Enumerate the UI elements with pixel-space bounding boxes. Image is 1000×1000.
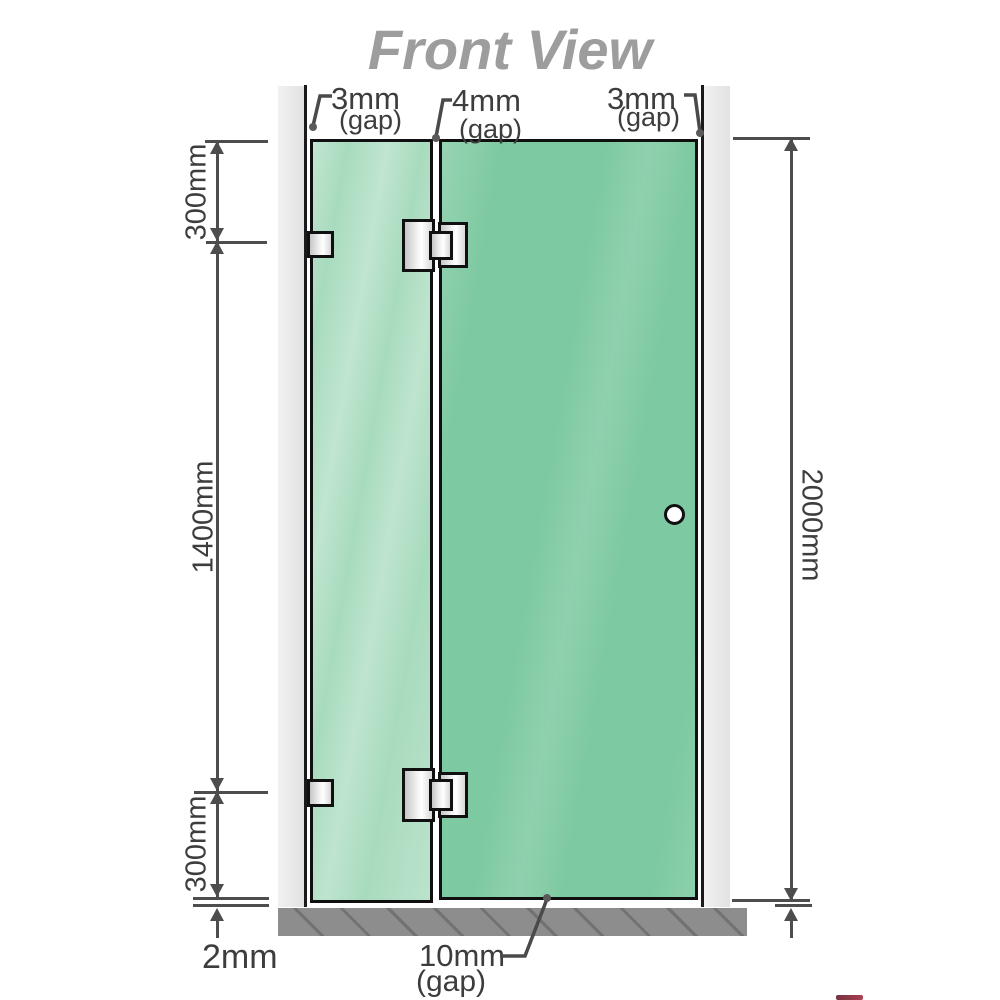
arrow-down-icon <box>210 778 224 791</box>
door-knob-icon <box>664 504 685 525</box>
gap-label-4mm-middle: 4mm <box>452 85 521 116</box>
wall-bracket-bottom <box>307 779 334 807</box>
dimension-line-right <box>790 138 793 901</box>
dim-label-300-bottom: 300mm <box>183 796 212 893</box>
gap-qualifier-left: (gap) <box>339 107 402 134</box>
leader-dot <box>309 123 317 131</box>
hinge-bottom-center-block <box>429 779 453 811</box>
hinge-top-center-block <box>429 231 453 260</box>
floor-gap-stem-right <box>790 920 793 938</box>
arrow-up-icon <box>210 241 224 254</box>
leader-gap-left <box>313 96 332 126</box>
leader-gap-middle <box>436 100 452 137</box>
extension-line-glass-bottom-right <box>732 899 810 902</box>
leader-gap-right <box>684 95 700 132</box>
gap-qualifier-middle: (gap) <box>459 116 522 143</box>
extension-line-300-bottom <box>194 791 268 794</box>
wall-bracket-top <box>307 231 334 258</box>
dim-label-300-top: 300mm <box>183 144 212 241</box>
door-glass-panel <box>439 139 698 900</box>
cropped-logo-fragment <box>836 995 863 1000</box>
dim-label-1400: 1400mm <box>190 461 219 574</box>
dim-label-2mm: 2mm <box>202 940 278 974</box>
right-wall-channel <box>704 86 730 907</box>
front-view-diagram: Front View 300mm 1400mm 300mm 2mm 2000m <box>0 0 1000 1000</box>
extension-line-floor-top-left <box>193 904 269 907</box>
arrow-up-icon <box>784 138 798 151</box>
extension-line-floor-top-right <box>775 904 812 907</box>
dim-label-2000: 2000mm <box>797 469 826 582</box>
gap-qualifier-right: (gap) <box>617 104 680 131</box>
floor-gap-stem-left <box>216 920 219 938</box>
extension-line-glass-bottom-left <box>193 897 269 900</box>
right-wall-line <box>701 85 704 907</box>
arrow-down-icon <box>784 888 798 901</box>
floor-base <box>278 908 747 936</box>
left-wall-channel <box>278 86 304 907</box>
extension-line-glass-top-right <box>733 137 810 140</box>
page-title: Front View <box>340 22 680 78</box>
gap-qualifier-bottom: (gap) <box>416 967 486 997</box>
